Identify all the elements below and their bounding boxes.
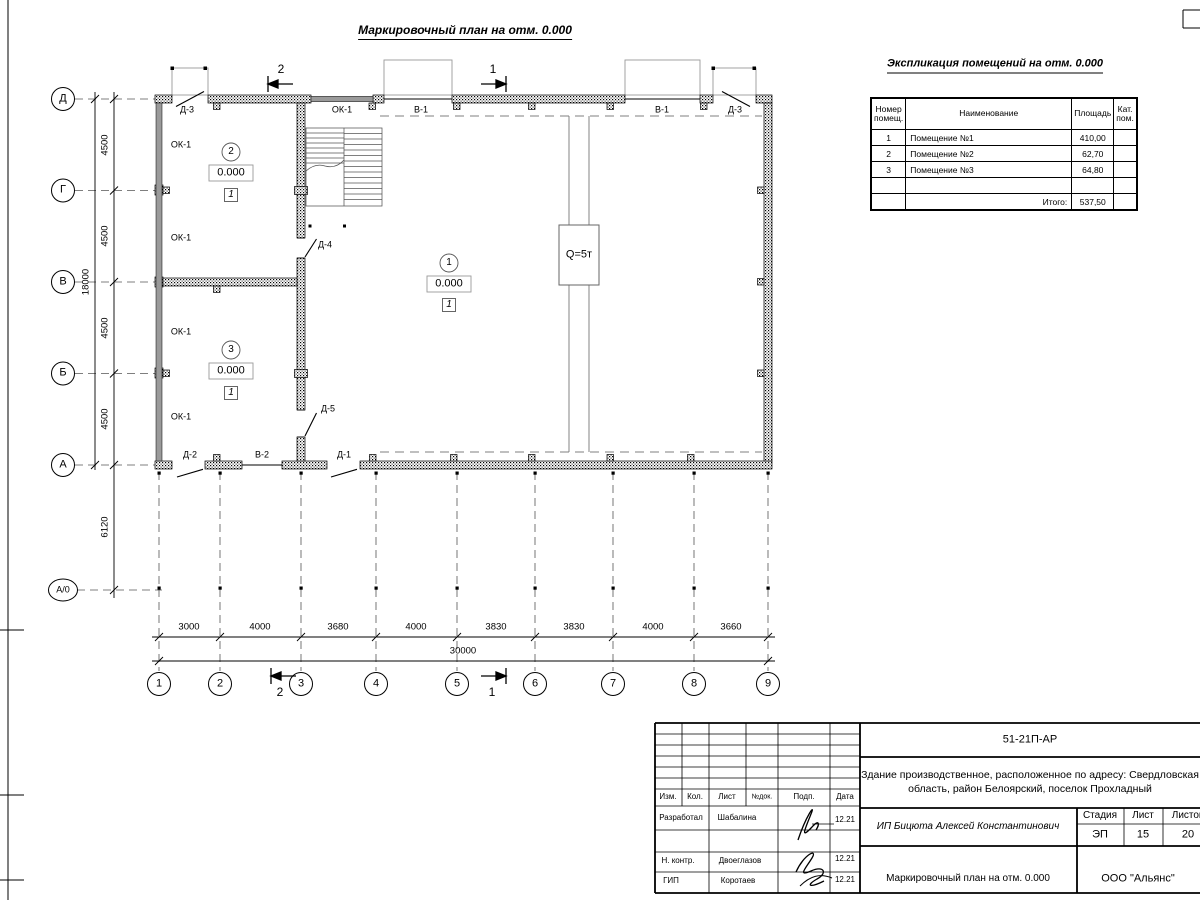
gate-mark-v1: В-1 (655, 106, 669, 115)
explication-title: Экспликация помещений на отм. 0.000 (887, 59, 1103, 74)
col-izm: Изм. (659, 793, 676, 801)
table-row: 3 Помещение №3 64,80 (871, 162, 1137, 178)
dim-text: 4000 (249, 622, 270, 632)
table-row: 2 Помещение №2 62,70 (871, 146, 1137, 162)
dim-text: 6120 (100, 516, 110, 537)
axis-col-label: 9 (765, 679, 771, 690)
cell-name: Помещение №1 (906, 130, 1072, 146)
cell-cat (1114, 130, 1137, 146)
dim-text: 4500 (100, 134, 110, 155)
door-mark-d2: Д-2 (183, 451, 197, 460)
room-number: 1 (446, 258, 452, 268)
signer-name: Коротаев (721, 877, 756, 885)
gate-mark-v1: В-1 (414, 106, 428, 115)
col-header-area: Площадь (1072, 98, 1114, 130)
cell-cat (1114, 162, 1137, 178)
entrance-canopies (171, 60, 757, 95)
axis-col-label: 5 (454, 679, 460, 690)
axis-col-label: 7 (610, 679, 616, 690)
dim-text: 4500 (100, 225, 110, 246)
stage-value: ЭП (1092, 830, 1108, 841)
sheets-value: 20 (1182, 830, 1194, 841)
drawing-sheet: { "sheet": { "main_title": "Маркировочны… (0, 0, 1200, 900)
col-header-cat: Кат. пом. (1114, 98, 1137, 130)
signer-role: ГИП (663, 877, 679, 885)
col-kol: Кол. (687, 793, 703, 801)
staircase (306, 128, 382, 228)
window-mark-ok1: ОК-1 (171, 328, 191, 337)
door-mark-d3: Д-3 (180, 106, 194, 115)
cell-name: Помещение №2 (906, 146, 1072, 162)
signer-name: Двоеглазов (719, 857, 762, 865)
section-mark-1: 1 (490, 63, 497, 75)
axis-col-label: 1 (156, 679, 162, 690)
col-header-name: Наименование (906, 98, 1072, 130)
company-name: ООО "Альянс" (1101, 874, 1175, 885)
cell-cat (1114, 146, 1137, 162)
table-row: 1 Помещение №1 410,00 (871, 130, 1137, 146)
cell-num: 1 (871, 130, 906, 146)
col-header-num: Номер помещ. (871, 98, 906, 130)
window-mark-ok1: ОК-1 (171, 234, 191, 243)
col-data: Дата (836, 793, 854, 801)
axis-col-label: 4 (373, 679, 379, 690)
col-podp: Подп. (793, 793, 814, 801)
dimension-lines (91, 92, 775, 665)
explication-table: Номер помещ. Наименование Площадь Кат. п… (870, 97, 1138, 211)
axis-col-label: 3 (298, 679, 304, 690)
main-title: Маркировочный план на отм. 0.000 (358, 24, 572, 40)
dim-text: 4000 (405, 622, 426, 632)
dim-text: 3660 (720, 622, 741, 632)
axis-col-label: 8 (691, 679, 697, 690)
signer-role: Н. контр. (661, 857, 694, 865)
door-mark-d3: Д-3 (728, 106, 742, 115)
window-mark-ok1: ОК-1 (171, 413, 191, 422)
signatures (796, 810, 834, 886)
document-number: 51-21П-АР (1003, 735, 1057, 746)
project-description: Здание производственное, расположенное п… (861, 768, 1199, 796)
cell-area: 62,70 (1072, 146, 1114, 162)
sheet-value: 15 (1137, 830, 1149, 841)
room-elevation: 0.000 (435, 279, 463, 290)
door-mark-d1: Д-1 (337, 451, 351, 460)
cell-area: 64,80 (1072, 162, 1114, 178)
signer-date: 12.21 (835, 855, 855, 863)
table-total-row: Итого: 537,50 (871, 194, 1137, 211)
cell-name: Помещение №3 (906, 162, 1072, 178)
room-number: 3 (228, 345, 234, 355)
room-finish-type: 1 (228, 190, 234, 200)
room-elevation: 0.000 (217, 168, 245, 179)
cell-area: 410,00 (1072, 130, 1114, 146)
dim-text-total: 18000 (81, 269, 91, 295)
room-elevation: 0.000 (217, 366, 245, 377)
title-block-lines (655, 723, 1200, 893)
window-mark-ok1: ОК-1 (171, 141, 191, 150)
cell-num: 2 (871, 146, 906, 162)
section-mark-1: 1 (489, 686, 496, 698)
dim-text: 4500 (100, 408, 110, 429)
grid-axis-lines (75, 99, 768, 671)
window-mark-ok1: ОК-1 (332, 106, 352, 115)
axis-row-label: А (59, 460, 66, 471)
dim-text-total: 30000 (450, 646, 476, 656)
axis-row-label: Г (60, 185, 66, 196)
axis-col-label: 6 (532, 679, 538, 690)
dim-text: 3000 (178, 622, 199, 632)
door-mark-d5: Д-5 (321, 405, 335, 414)
sheets-header: Листов (1172, 811, 1200, 821)
dim-text: 4000 (642, 622, 663, 632)
sheet-header: Лист (1132, 811, 1154, 821)
dim-text: 3680 (327, 622, 348, 632)
total-label: Итого: (906, 194, 1072, 211)
column-dots (158, 472, 770, 590)
gate-mark-v2: В-2 (255, 451, 269, 460)
room-stamps (209, 143, 471, 400)
axis-row-label: Д (59, 94, 66, 105)
col-ndok: №док. (752, 794, 773, 801)
section-mark-2: 2 (278, 63, 285, 75)
total-value: 537,50 (1072, 194, 1114, 211)
crane-capacity-label: Q=5т (566, 250, 592, 261)
section-mark-2: 2 (277, 686, 284, 698)
explication-header-row: Номер помещ. Наименование Площадь Кат. п… (871, 98, 1137, 130)
dim-text: 4500 (100, 317, 110, 338)
dim-text: 3830 (563, 622, 584, 632)
drawing-title: Маркировочный план на отм. 0.000 (886, 872, 1051, 886)
room-number: 2 (228, 147, 234, 157)
signer-date: 12.21 (835, 816, 855, 824)
signer-date: 12.21 (835, 876, 855, 884)
room-finish-type: 1 (446, 300, 452, 310)
dim-text: 3830 (485, 622, 506, 632)
axis-row-label: А/0 (56, 586, 70, 595)
table-row-empty (871, 178, 1137, 194)
door-mark-d4: Д-4 (318, 241, 332, 250)
axis-row-label: В (59, 277, 66, 288)
signer-role: Разработал (659, 814, 703, 822)
axis-row-label: Б (59, 368, 66, 379)
stage-header: Стадия (1083, 811, 1117, 821)
room-finish-type: 1 (228, 388, 234, 398)
axis-col-label: 2 (217, 679, 223, 690)
cell-num: 3 (871, 162, 906, 178)
designer-name: ИП Бицюта Алексей Константинович (877, 822, 1060, 832)
signer-name: Шабалина (718, 814, 757, 822)
col-list: Лист (718, 793, 735, 801)
